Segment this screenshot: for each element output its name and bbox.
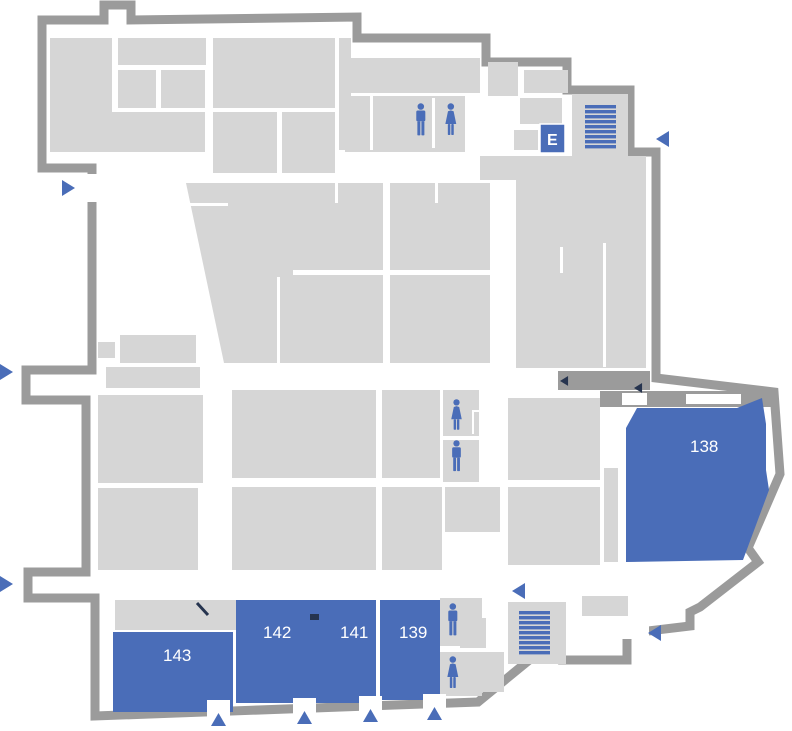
room — [488, 62, 518, 96]
entrance-arrow-icon — [0, 364, 13, 380]
room — [516, 180, 646, 368]
room — [508, 398, 600, 480]
room-143-label: 143 — [163, 646, 191, 665]
room — [232, 487, 376, 570]
room-142-141[interactable] — [236, 600, 376, 703]
room — [282, 112, 335, 173]
room — [98, 342, 115, 358]
room-139[interactable] — [380, 600, 440, 700]
door-swing — [472, 410, 487, 412]
room — [50, 38, 112, 152]
room — [112, 112, 205, 152]
room — [98, 395, 203, 483]
entrance-arrow-icon — [0, 576, 13, 592]
room — [445, 487, 500, 532]
partition — [560, 247, 563, 273]
corridor — [460, 618, 486, 648]
room — [161, 70, 205, 108]
partition — [432, 98, 435, 148]
stairs-icon — [519, 611, 550, 654]
room — [213, 38, 335, 108]
partition — [190, 203, 228, 206]
room — [106, 367, 200, 388]
room — [382, 390, 440, 478]
room-142-label: 142 — [263, 623, 291, 642]
room — [514, 130, 538, 150]
door-swing — [472, 410, 474, 434]
room-138-label: 138 — [690, 437, 718, 456]
room — [382, 487, 442, 570]
room — [604, 468, 618, 562]
room — [213, 112, 277, 173]
restroom-block — [440, 652, 482, 696]
partition — [277, 277, 280, 363]
room — [232, 390, 376, 478]
elevator-marker[interactable]: E — [540, 124, 565, 153]
partition — [435, 183, 438, 203]
door — [76, 174, 104, 202]
room — [120, 335, 196, 363]
room-138[interactable] — [626, 398, 769, 562]
room — [508, 487, 600, 565]
room-141-label: 141 — [340, 623, 368, 642]
floor-plan: 138 139 141 142 143 E — [0, 0, 792, 731]
door — [607, 625, 649, 639]
corridor — [480, 652, 504, 692]
partition — [603, 243, 606, 367]
partition — [370, 96, 373, 150]
partition — [293, 270, 490, 275]
door — [686, 394, 741, 404]
stairs-icon — [585, 105, 616, 148]
partition — [335, 183, 338, 203]
room — [118, 70, 156, 108]
room — [98, 488, 198, 570]
room — [118, 38, 206, 65]
room — [520, 98, 562, 124]
entrance-arrow-icon — [512, 583, 525, 599]
room — [345, 58, 480, 93]
elevator-label: E — [547, 132, 558, 149]
room-139-label: 139 — [399, 623, 427, 642]
door-tick — [310, 614, 319, 620]
floor-plan-svg: 138 139 141 142 143 E — [0, 0, 792, 731]
partition — [443, 436, 479, 440]
door — [622, 393, 647, 405]
entrance-arrow-icon — [656, 131, 669, 147]
room — [524, 70, 568, 93]
entrance-arrow-icon — [62, 180, 75, 196]
corridor — [480, 156, 646, 180]
corridor — [582, 596, 628, 616]
